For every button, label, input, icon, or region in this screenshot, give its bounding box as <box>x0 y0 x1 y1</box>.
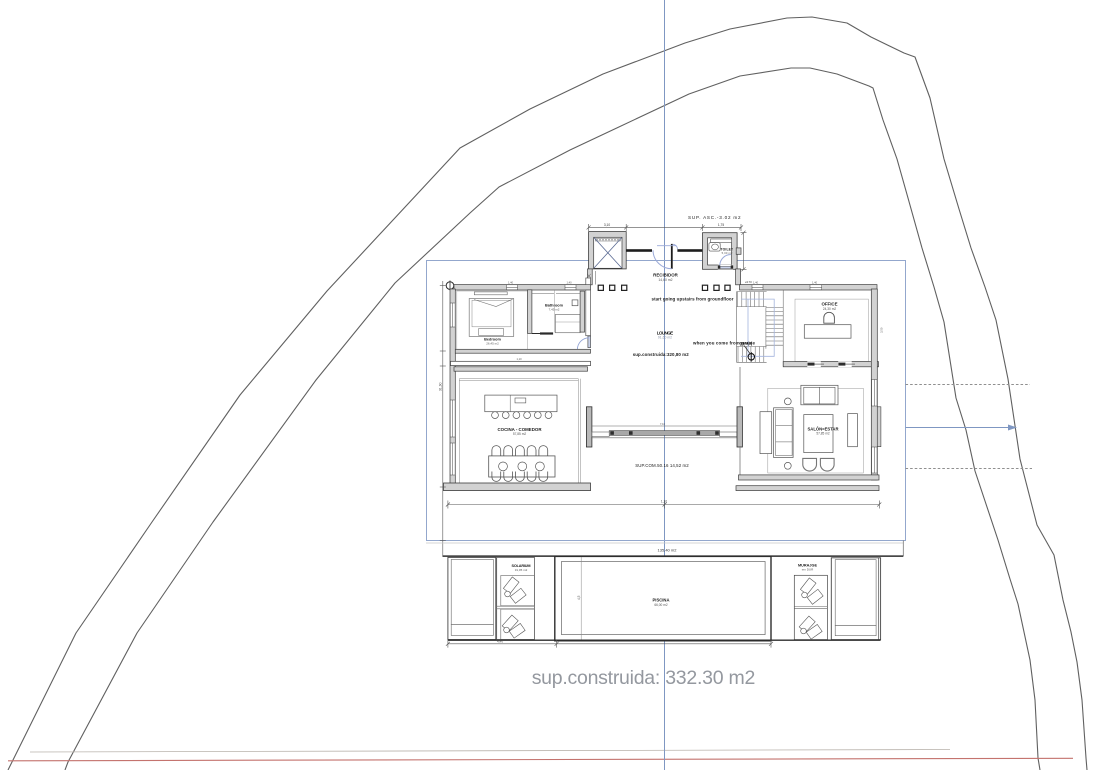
svg-text:3,50: 3,50 <box>880 327 884 333</box>
svg-text:7,45 m2: 7,45 m2 <box>549 307 560 311</box>
svg-text:garaje: garaje <box>740 341 753 346</box>
svg-text:57,85 m2: 57,85 m2 <box>513 432 527 436</box>
svg-text:4,5: 4,5 <box>577 595 581 600</box>
svg-text:sup.construida: 332.30 m2: sup.construida: 332.30 m2 <box>532 667 756 689</box>
svg-text:1,10: 1,10 <box>517 357 523 361</box>
svg-text:1,40: 1,40 <box>567 281 573 285</box>
svg-text:66,00 m2: 66,00 m2 <box>654 603 668 607</box>
svg-text:4,40: 4,40 <box>497 640 503 644</box>
svg-text:1,10: 1,10 <box>661 500 667 504</box>
svg-text:⌀170: ⌀170 <box>745 280 752 284</box>
svg-text:SUP.COM.50.16 14,52 m2: SUP.COM.50.16 14,52 m2 <box>635 463 689 468</box>
svg-text:1,40: 1,40 <box>508 281 514 285</box>
svg-text:OFFICE: OFFICE <box>821 302 837 307</box>
svg-text:PISCINA: PISCINA <box>653 598 670 603</box>
svg-text:1,40: 1,40 <box>812 281 818 285</box>
svg-text:91,60 m2: 91,60 m2 <box>658 336 672 340</box>
svg-text:31,90: 31,90 <box>439 382 443 391</box>
svg-text:1,75: 1,75 <box>718 223 724 227</box>
svg-text:COCINA - COMEDOR: COCINA - COMEDOR <box>498 427 543 432</box>
svg-text:7,10: 7,10 <box>660 422 666 426</box>
svg-text:em DUR: em DUR <box>802 567 814 571</box>
svg-text:14,60 m2: 14,60 m2 <box>658 278 672 282</box>
svg-text:start going upstairs from grou: start going upstairs from groundfloor <box>652 297 734 302</box>
svg-text:24,30 m2: 24,30 m2 <box>823 307 837 311</box>
svg-text:5,00 m2: 5,00 m2 <box>722 251 733 255</box>
svg-text:3,10: 3,10 <box>604 223 610 227</box>
svg-text:sup.construida:320,80 m2: sup.construida:320,80 m2 <box>633 352 690 357</box>
svg-text:SUP. ASC.-3.02 m2: SUP. ASC.-3.02 m2 <box>688 215 741 220</box>
svg-text:135,40 m2: 135,40 m2 <box>658 548 678 553</box>
svg-text:1,40: 1,40 <box>753 281 759 285</box>
svg-text:57,85 m2: 57,85 m2 <box>816 432 830 436</box>
svg-text:26,45 m2: 26,45 m2 <box>486 342 499 346</box>
svg-text:RECIBIDOR: RECIBIDOR <box>653 273 678 278</box>
svg-text:31,05 m2: 31,05 m2 <box>515 568 528 572</box>
svg-text:TOILET: TOILET <box>721 248 734 252</box>
